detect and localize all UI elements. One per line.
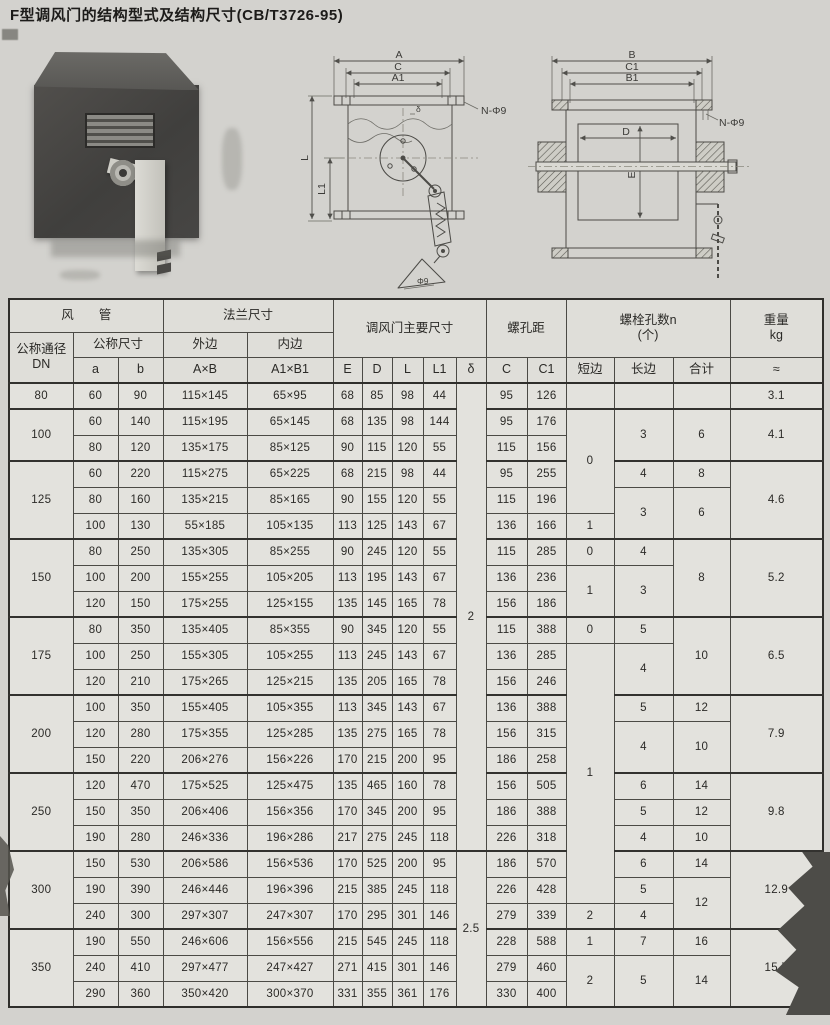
header-cell: b — [118, 357, 163, 383]
data-cell: 275 — [362, 825, 392, 851]
data-cell: 345 — [362, 695, 392, 721]
lever-arm — [403, 158, 434, 189]
data-cell: 301 — [392, 903, 423, 929]
data-cell: 156×536 — [247, 851, 333, 877]
data-cell: 68 — [333, 461, 362, 487]
data-cell: 236 — [527, 565, 566, 591]
dim-label-l1: L1 — [316, 183, 328, 195]
data-cell: 215 — [333, 929, 362, 955]
data-cell: 0 — [566, 539, 614, 565]
dim-label-b1: B1 — [626, 72, 639, 84]
data-cell: 80 — [73, 617, 118, 643]
data-cell — [614, 383, 673, 409]
data-cell: 4 — [614, 643, 673, 695]
data-cell: 315 — [527, 721, 566, 747]
data-cell: 67 — [423, 513, 456, 539]
phi9-label: Φ9 — [417, 276, 429, 286]
data-cell: 98 — [392, 409, 423, 435]
data-cell: 206×406 — [163, 799, 247, 825]
data-cell: 55×185 — [163, 513, 247, 539]
data-cell: 67 — [423, 695, 456, 721]
data-cell: 146 — [423, 955, 456, 981]
break-line — [348, 119, 452, 130]
scan-smudge — [222, 128, 242, 190]
data-cell: 350 — [118, 799, 163, 825]
data-cell: 275 — [362, 721, 392, 747]
data-cell: 120 — [118, 435, 163, 461]
header-cell: 公称通径 DN — [9, 332, 73, 383]
chain-toggle — [711, 234, 724, 243]
data-cell: 247×427 — [247, 955, 333, 981]
data-cell: 388 — [527, 617, 566, 643]
header-cell: a — [73, 357, 118, 383]
header-cell: A1×B1 — [247, 357, 333, 383]
data-cell: 166 — [527, 513, 566, 539]
data-cell: 12 — [673, 877, 730, 929]
data-cell: 150 — [73, 747, 118, 773]
data-cell: 90 — [333, 487, 362, 513]
data-cell: 330 — [486, 981, 527, 1007]
data-cell: 135 — [333, 773, 362, 799]
data-cell: 113 — [333, 513, 362, 539]
data-cell: 206×586 — [163, 851, 247, 877]
data-cell: 165 — [392, 669, 423, 695]
data-cell: 143 — [392, 513, 423, 539]
data-cell: 85 — [362, 383, 392, 409]
data-cell: 226 — [486, 877, 527, 903]
data-cell: 156×556 — [247, 929, 333, 955]
data-cell: 115×195 — [163, 409, 247, 435]
data-cell: 115 — [486, 617, 527, 643]
dim-label-l: L — [299, 155, 311, 161]
data-cell: 390 — [118, 877, 163, 903]
data-cell: 65×95 — [247, 383, 333, 409]
data-cell: 345 — [362, 799, 392, 825]
data-cell: 1 — [566, 929, 614, 955]
data-cell: 68 — [333, 383, 362, 409]
data-cell: 120 — [392, 435, 423, 461]
data-cell: 190 — [73, 929, 118, 955]
table-body: 806090115×14565×95688598442951263.110060… — [9, 383, 823, 1007]
data-cell: 8 — [673, 539, 730, 617]
data-cell: 135×405 — [163, 617, 247, 643]
dim-label-a: A — [395, 49, 402, 61]
data-cell: 136 — [486, 695, 527, 721]
data-cell: 200 — [9, 695, 73, 773]
data-cell: 285 — [527, 643, 566, 669]
data-cell: 126 — [527, 383, 566, 409]
bolt-holes-label: N-Φ9 — [719, 117, 744, 129]
data-cell: 150 — [118, 591, 163, 617]
data-cell: 175×255 — [163, 591, 247, 617]
data-cell: 60 — [73, 383, 118, 409]
data-cell: 1 — [566, 565, 614, 617]
data-cell: 115×275 — [163, 461, 247, 487]
data-cell: 118 — [423, 825, 456, 851]
data-cell: 6 — [614, 851, 673, 877]
data-cell: 100 — [73, 643, 118, 669]
header-cell: E — [333, 357, 362, 383]
data-cell: 105×205 — [247, 565, 333, 591]
photo-shadow — [51, 240, 179, 257]
data-cell: 155×305 — [163, 643, 247, 669]
data-cell: 125 — [9, 461, 73, 539]
data-cell: 12 — [673, 695, 730, 721]
data-cell: 0 — [566, 409, 614, 513]
data-cell: 113 — [333, 565, 362, 591]
data-cell: 118 — [423, 929, 456, 955]
data-cell: 44 — [423, 383, 456, 409]
data-cell: 1 — [566, 643, 614, 903]
data-cell: 120 — [392, 539, 423, 565]
data-cell: 14 — [673, 773, 730, 799]
header-cell: 公称尺寸 — [73, 332, 163, 357]
photo-handle-notch — [157, 263, 171, 275]
data-cell: 130 — [118, 513, 163, 539]
data-cell: 215 — [362, 747, 392, 773]
data-cell: 98 — [392, 461, 423, 487]
data-cell: 90 — [118, 383, 163, 409]
data-cell: 67 — [423, 643, 456, 669]
data-cell: 100 — [73, 695, 118, 721]
data-cell: 175×265 — [163, 669, 247, 695]
data-cell: 120 — [73, 591, 118, 617]
data-cell: 186 — [486, 851, 527, 877]
data-cell: 250 — [9, 773, 73, 851]
data-cell: 530 — [118, 851, 163, 877]
data-cell: 4 — [614, 539, 673, 565]
header-cell: 风 管 — [9, 299, 163, 332]
header-cell: 短边 — [566, 357, 614, 383]
data-cell: 143 — [392, 565, 423, 591]
data-cell: 135 — [333, 591, 362, 617]
data-cell: 4 — [614, 825, 673, 851]
data-cell: 115 — [486, 435, 527, 461]
data-cell: 155 — [362, 487, 392, 513]
data-cell: 165 — [392, 721, 423, 747]
header-cell: 外边 — [163, 332, 247, 357]
data-cell: 217 — [333, 825, 362, 851]
data-cell: 258 — [527, 747, 566, 773]
data-cell: 460 — [527, 955, 566, 981]
data-cell: 2 — [456, 383, 486, 851]
data-cell: 570 — [527, 851, 566, 877]
data-cell: 10 — [673, 825, 730, 851]
data-cell: 8 — [673, 461, 730, 487]
top-flange — [552, 100, 712, 110]
data-cell: 55 — [423, 487, 456, 513]
data-cell: 186 — [486, 799, 527, 825]
photo-nameplate — [85, 113, 155, 148]
data-cell: 144 — [423, 409, 456, 435]
dim-label-a1: A1 — [392, 72, 405, 84]
data-cell: 125 — [362, 513, 392, 539]
data-cell: 428 — [527, 877, 566, 903]
data-cell: 95 — [423, 851, 456, 877]
data-cell: 156 — [486, 773, 527, 799]
data-cell: 505 — [527, 773, 566, 799]
photo-handle-pivot — [110, 160, 136, 186]
data-cell: 60 — [73, 461, 118, 487]
data-cell: 135 — [333, 669, 362, 695]
data-cell: 115 — [362, 435, 392, 461]
data-cell: 120 — [73, 773, 118, 799]
data-cell: 388 — [527, 695, 566, 721]
data-cell: 85×125 — [247, 435, 333, 461]
data-cell: 4.6 — [730, 461, 823, 539]
data-cell: 246×606 — [163, 929, 247, 955]
data-cell: 190 — [73, 825, 118, 851]
data-cell: 125×155 — [247, 591, 333, 617]
data-cell: 350 — [118, 617, 163, 643]
data-cell: 247×307 — [247, 903, 333, 929]
data-cell: 246 — [527, 669, 566, 695]
data-cell: 120 — [392, 487, 423, 513]
data-cell: 271 — [333, 955, 362, 981]
front-view-drawing: A C A1 N-Φ9 δ Φ9 L L1 — [298, 48, 520, 296]
data-cell: 105×135 — [247, 513, 333, 539]
data-cell: 7.9 — [730, 695, 823, 773]
data-cell: 3.1 — [730, 383, 823, 409]
scan-smudge — [2, 29, 18, 40]
data-cell: 410 — [118, 955, 163, 981]
data-cell: 2.5 — [456, 851, 486, 1007]
data-cell: 176 — [527, 409, 566, 435]
header-cell: 长边 — [614, 357, 673, 383]
dim-label-d: D — [622, 126, 630, 138]
data-cell: 78 — [423, 773, 456, 799]
data-cell: 250 — [118, 643, 163, 669]
data-cell: 331 — [333, 981, 362, 1007]
page-title: F型调风门的结构型式及结构尺寸(CB/T3726-95) — [10, 4, 343, 25]
data-cell: 68 — [333, 409, 362, 435]
data-cell: 0 — [566, 617, 614, 643]
data-cell: 100 — [73, 513, 118, 539]
data-cell: 220 — [118, 461, 163, 487]
data-cell: 85×165 — [247, 487, 333, 513]
data-cell: 196 — [527, 487, 566, 513]
data-cell: 246×446 — [163, 877, 247, 903]
data-cell: 250 — [118, 539, 163, 565]
data-cell: 355 — [362, 981, 392, 1007]
data-cell: 5 — [614, 695, 673, 721]
data-cell: 85×255 — [247, 539, 333, 565]
spring — [436, 203, 445, 237]
data-cell: 1 — [566, 513, 614, 539]
header-cell: 合计 — [673, 357, 730, 383]
data-cell: 186 — [486, 747, 527, 773]
data-cell: 186 — [527, 591, 566, 617]
data-cell: 6.5 — [730, 617, 823, 695]
data-cell: 470 — [118, 773, 163, 799]
data-cell: 280 — [118, 721, 163, 747]
data-cell: 135×215 — [163, 487, 247, 513]
data-cell: 55 — [423, 539, 456, 565]
data-cell: 2 — [566, 903, 614, 929]
data-cell: 195 — [362, 565, 392, 591]
data-cell: 245 — [392, 929, 423, 955]
damper-photo — [30, 52, 208, 244]
data-cell: 170 — [333, 799, 362, 825]
data-cell: 80 — [73, 487, 118, 513]
data-cell: 279 — [486, 955, 527, 981]
data-cell: 44 — [423, 461, 456, 487]
data-cell: 113 — [333, 695, 362, 721]
data-cell: 9.8 — [730, 773, 823, 851]
data-cell: 135×175 — [163, 435, 247, 461]
data-cell: 190 — [73, 877, 118, 903]
data-cell: 295 — [362, 903, 392, 929]
data-cell: 279 — [486, 903, 527, 929]
data-cell: 175×525 — [163, 773, 247, 799]
data-cell: 6 — [673, 487, 730, 539]
data-cell: 2 — [566, 955, 614, 1007]
data-cell: 240 — [73, 955, 118, 981]
data-cell: 545 — [362, 929, 392, 955]
data-cell: 150 — [73, 851, 118, 877]
data-cell: 155×405 — [163, 695, 247, 721]
side-view-drawing: B C1 B1 N-Φ9 D E — [522, 48, 757, 296]
data-cell: 14 — [673, 851, 730, 877]
data-cell: 14 — [673, 955, 730, 1007]
data-cell: 5 — [614, 955, 673, 1007]
data-cell: 16 — [673, 929, 730, 955]
data-cell: 120 — [392, 617, 423, 643]
data-cell: 525 — [362, 851, 392, 877]
data-cell: 245 — [362, 539, 392, 565]
header-cell: 内边 — [247, 332, 333, 357]
data-cell: 5.2 — [730, 539, 823, 617]
data-cell: 125×285 — [247, 721, 333, 747]
data-cell: 228 — [486, 929, 527, 955]
bolt-holes-label: N-Φ9 — [481, 105, 506, 117]
data-cell: 3 — [614, 409, 673, 461]
data-cell: 220 — [118, 747, 163, 773]
data-cell: 113 — [333, 643, 362, 669]
data-cell: 240 — [73, 903, 118, 929]
bottom-flange — [334, 211, 464, 219]
header-cell: L1 — [423, 357, 456, 383]
data-cell: 78 — [423, 721, 456, 747]
data-cell: 175 — [9, 617, 73, 695]
data-cell: 245 — [392, 877, 423, 903]
header-cell: 法兰尺寸 — [163, 299, 333, 332]
data-cell: 5 — [614, 799, 673, 825]
data-cell: 285 — [527, 539, 566, 565]
data-cell: 115 — [486, 487, 527, 513]
data-cell: 156×356 — [247, 799, 333, 825]
header-cell: C — [486, 357, 527, 383]
data-cell — [566, 383, 614, 409]
data-cell: 165 — [392, 591, 423, 617]
data-cell: 245 — [392, 825, 423, 851]
data-cell: 196×286 — [247, 825, 333, 851]
data-cell: 196×396 — [247, 877, 333, 903]
photo-box-top — [34, 52, 200, 90]
data-cell: 345 — [362, 617, 392, 643]
header-cell: 重量 kg — [730, 299, 823, 357]
data-cell: 361 — [392, 981, 423, 1007]
data-cell: 146 — [423, 903, 456, 929]
bottom-flange — [552, 248, 712, 258]
header-cell: 螺孔距 — [486, 299, 566, 357]
data-cell: 100 — [9, 409, 73, 461]
data-cell: 588 — [527, 929, 566, 955]
data-cell: 85×355 — [247, 617, 333, 643]
data-cell: 135 — [362, 409, 392, 435]
data-cell: 100 — [73, 565, 118, 591]
data-cell: 550 — [118, 929, 163, 955]
data-cell: 350×420 — [163, 981, 247, 1007]
data-cell: 175×355 — [163, 721, 247, 747]
data-cell — [673, 383, 730, 409]
data-cell: 176 — [423, 981, 456, 1007]
header-cell: C1 — [527, 357, 566, 383]
data-cell: 10 — [673, 721, 730, 773]
data-cell: 156×226 — [247, 747, 333, 773]
data-cell: 280 — [118, 825, 163, 851]
data-cell: 206×276 — [163, 747, 247, 773]
data-cell: 200 — [392, 747, 423, 773]
data-cell: 12 — [673, 799, 730, 825]
data-cell: 200 — [392, 851, 423, 877]
data-cell: 55 — [423, 435, 456, 461]
data-cell: 4 — [614, 903, 673, 929]
data-cell: 136 — [486, 513, 527, 539]
scan-smudge — [60, 270, 100, 280]
data-cell: 465 — [362, 773, 392, 799]
data-cell: 156 — [527, 435, 566, 461]
data-cell: 105×355 — [247, 695, 333, 721]
dim-label-e: E — [626, 171, 638, 178]
data-cell: 350 — [118, 695, 163, 721]
data-cell: 65×225 — [247, 461, 333, 487]
data-cell: 90 — [333, 435, 362, 461]
data-cell: 5 — [614, 877, 673, 903]
header-cell: L — [392, 357, 423, 383]
data-cell: 170 — [333, 903, 362, 929]
data-cell: 80 — [73, 435, 118, 461]
data-cell: 140 — [118, 409, 163, 435]
data-cell: 145 — [362, 591, 392, 617]
data-cell: 388 — [527, 799, 566, 825]
data-cell: 3 — [614, 487, 673, 539]
data-cell: 360 — [118, 981, 163, 1007]
data-cell: 115 — [486, 539, 527, 565]
header-cell: ≈ — [730, 357, 823, 383]
data-cell: 6 — [673, 409, 730, 461]
data-cell: 10 — [673, 617, 730, 695]
data-cell: 105×255 — [247, 643, 333, 669]
data-cell: 226 — [486, 825, 527, 851]
data-cell: 300 — [9, 851, 73, 929]
data-cell: 143 — [392, 643, 423, 669]
data-cell: 135×305 — [163, 539, 247, 565]
data-cell: 156 — [486, 669, 527, 695]
header-cell: D — [362, 357, 392, 383]
data-cell: 150 — [73, 799, 118, 825]
data-cell: 160 — [118, 487, 163, 513]
data-cell: 120 — [73, 721, 118, 747]
data-cell: 95 — [486, 461, 527, 487]
data-cell: 60 — [73, 409, 118, 435]
document-page: F型调风门的结构型式及结构尺寸(CB/T3726-95) A C A1 N-Φ9… — [0, 0, 830, 1025]
data-cell: 210 — [118, 669, 163, 695]
data-cell: 5 — [614, 617, 673, 643]
data-cell: 90 — [333, 539, 362, 565]
table-header: 风 管法兰尺寸调风门主要尺寸螺孔距螺栓孔数n (个)重量 kg公称通径 DN公称… — [9, 299, 823, 383]
header-cell: 螺栓孔数n (个) — [566, 299, 730, 357]
